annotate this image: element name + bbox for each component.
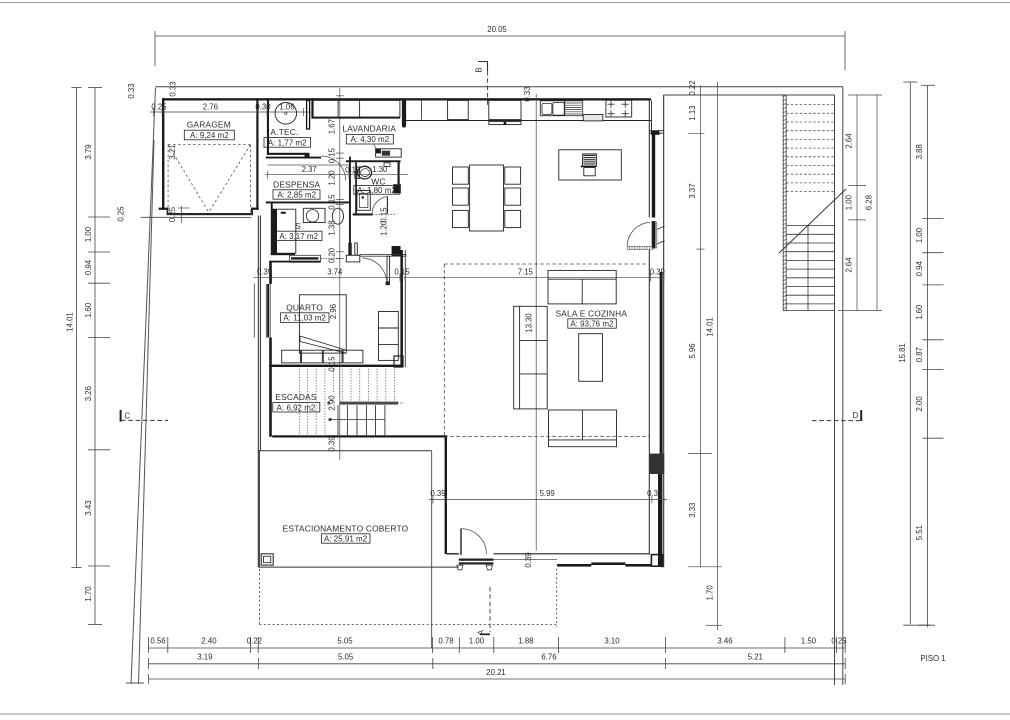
svg-text:2.64: 2.64 xyxy=(845,133,854,149)
svg-text:1.50: 1.50 xyxy=(801,637,817,646)
svg-text:1.67: 1.67 xyxy=(328,119,337,134)
svg-text:3.74: 3.74 xyxy=(327,268,343,277)
svg-text:0.33: 0.33 xyxy=(523,86,532,101)
svg-text:PISO 1: PISO 1 xyxy=(920,654,945,663)
svg-text:5.99: 5.99 xyxy=(540,489,555,498)
svg-text:14.01: 14.01 xyxy=(706,317,715,337)
svg-text:A: 9,24 m2: A: 9,24 m2 xyxy=(190,131,229,140)
svg-text:5.05: 5.05 xyxy=(337,637,353,646)
svg-text:6.76: 6.76 xyxy=(541,653,556,662)
svg-text:0.15: 0.15 xyxy=(328,356,337,372)
svg-text:0.94: 0.94 xyxy=(915,261,924,277)
svg-text:0.39: 0.39 xyxy=(257,268,272,277)
svg-text:2.76: 2.76 xyxy=(203,103,218,112)
svg-text:A.TEC.: A.TEC. xyxy=(270,127,298,137)
svg-text:3.19: 3.19 xyxy=(197,653,212,662)
svg-text:0.39: 0.39 xyxy=(328,436,337,451)
svg-text:0.33: 0.33 xyxy=(127,83,136,98)
svg-text:GARAGEM: GARAGEM xyxy=(187,120,231,130)
svg-text:ESCADAS: ESCADAS xyxy=(275,392,317,402)
svg-text:A: 25,91 m2: A: 25,91 m2 xyxy=(324,535,368,544)
svg-text:A: 1,77 m2: A: 1,77 m2 xyxy=(268,138,307,147)
svg-text:A: 2,85 m2: A: 2,85 m2 xyxy=(277,190,316,199)
svg-text:0.39: 0.39 xyxy=(430,489,445,498)
svg-text:0.22: 0.22 xyxy=(688,80,697,95)
svg-text:SALA E COZINHA: SALA E COZINHA xyxy=(555,308,627,318)
svg-text:0.25: 0.25 xyxy=(151,103,167,112)
svg-text:2.00: 2.00 xyxy=(915,396,924,412)
svg-text:WC: WC xyxy=(371,176,385,186)
svg-text:0.39: 0.39 xyxy=(524,552,533,567)
svg-text:2.96: 2.96 xyxy=(329,304,338,319)
svg-text:1.00: 1.00 xyxy=(469,637,485,646)
svg-text:0.94: 0.94 xyxy=(84,259,93,275)
svg-text:1.60: 1.60 xyxy=(84,302,93,318)
svg-text:1.00: 1.00 xyxy=(84,226,93,242)
svg-text:13.30: 13.30 xyxy=(525,313,534,333)
svg-text:2.64: 2.64 xyxy=(845,257,854,273)
svg-text:3.88: 3.88 xyxy=(915,144,924,159)
svg-text:1.70: 1.70 xyxy=(706,585,715,601)
svg-text:6.28: 6.28 xyxy=(865,195,874,210)
svg-text:3.26: 3.26 xyxy=(84,386,93,401)
svg-text:0.39: 0.39 xyxy=(647,489,662,498)
svg-text:0.22: 0.22 xyxy=(247,637,262,646)
svg-text:A: 11,03 m2: A: 11,03 m2 xyxy=(283,314,326,323)
svg-text:0.25: 0.25 xyxy=(831,637,847,646)
svg-text:5.51: 5.51 xyxy=(915,525,924,540)
svg-text:C: C xyxy=(125,411,131,420)
svg-text:0.33: 0.33 xyxy=(169,81,178,96)
svg-text:0.78: 0.78 xyxy=(438,637,453,646)
svg-text:5.96: 5.96 xyxy=(688,343,697,358)
svg-text:20.21: 20.21 xyxy=(486,668,506,677)
svg-text:7.15: 7.15 xyxy=(518,268,534,277)
svg-text:0.30: 0.30 xyxy=(255,103,271,112)
svg-text:1.20: 1.20 xyxy=(380,220,389,236)
svg-text:A: 6,92 m2: A: 6,92 m2 xyxy=(277,403,316,412)
svg-text:5.21: 5.21 xyxy=(748,653,763,662)
svg-text:1.60: 1.60 xyxy=(915,304,924,320)
svg-text:3.79: 3.79 xyxy=(84,144,93,159)
svg-text:2.40: 2.40 xyxy=(201,637,217,646)
svg-text:2.37: 2.37 xyxy=(302,165,317,174)
svg-text:1.20: 1.20 xyxy=(328,170,337,186)
svg-text:15.81: 15.81 xyxy=(898,343,907,363)
svg-text:0.56: 0.56 xyxy=(150,637,165,646)
svg-text:A: 3,17 m2: A: 3,17 m2 xyxy=(279,232,318,241)
svg-text:QUARTO: QUARTO xyxy=(286,303,323,313)
svg-text:1.13: 1.13 xyxy=(688,105,697,120)
svg-text:A: 4,30 m2: A: 4,30 m2 xyxy=(350,135,389,144)
svg-text:3.10: 3.10 xyxy=(604,637,620,646)
svg-text:0.87: 0.87 xyxy=(915,347,924,362)
svg-text:20.05: 20.05 xyxy=(487,25,507,34)
svg-text:ESTACIONAMENTO COBERTO: ESTACIONAMENTO COBERTO xyxy=(283,523,409,533)
svg-text:1.70: 1.70 xyxy=(84,586,93,602)
svg-text:0.15: 0.15 xyxy=(328,194,337,210)
svg-text:DESPENSA: DESPENSA xyxy=(273,179,320,189)
svg-text:D: D xyxy=(853,411,859,420)
svg-text:0.25: 0.25 xyxy=(168,206,177,222)
svg-text:0.39: 0.39 xyxy=(650,268,665,277)
svg-text:1.38: 1.38 xyxy=(328,220,337,235)
svg-text:14.01: 14.01 xyxy=(66,312,75,332)
svg-text:0.20: 0.20 xyxy=(328,247,337,263)
svg-text:1.06: 1.06 xyxy=(279,103,294,112)
svg-text:3.33: 3.33 xyxy=(688,503,697,518)
svg-text:5.05: 5.05 xyxy=(338,653,354,662)
svg-text:0.25: 0.25 xyxy=(117,206,126,222)
svg-text:A: 93,76 m2: A: 93,76 m2 xyxy=(570,320,614,329)
svg-text:1.88: 1.88 xyxy=(518,637,533,646)
svg-text:0.15: 0.15 xyxy=(394,268,410,277)
svg-text:1.00: 1.00 xyxy=(845,194,854,210)
svg-text:B: B xyxy=(475,67,484,72)
svg-text:3.46: 3.46 xyxy=(717,637,732,646)
svg-text:3.43: 3.43 xyxy=(84,500,93,515)
svg-text:1.00: 1.00 xyxy=(915,227,924,243)
svg-text:2.90: 2.90 xyxy=(328,395,337,411)
svg-text:LAVANDARIA: LAVANDARIA xyxy=(342,123,396,133)
svg-text:3.37: 3.37 xyxy=(688,183,697,198)
